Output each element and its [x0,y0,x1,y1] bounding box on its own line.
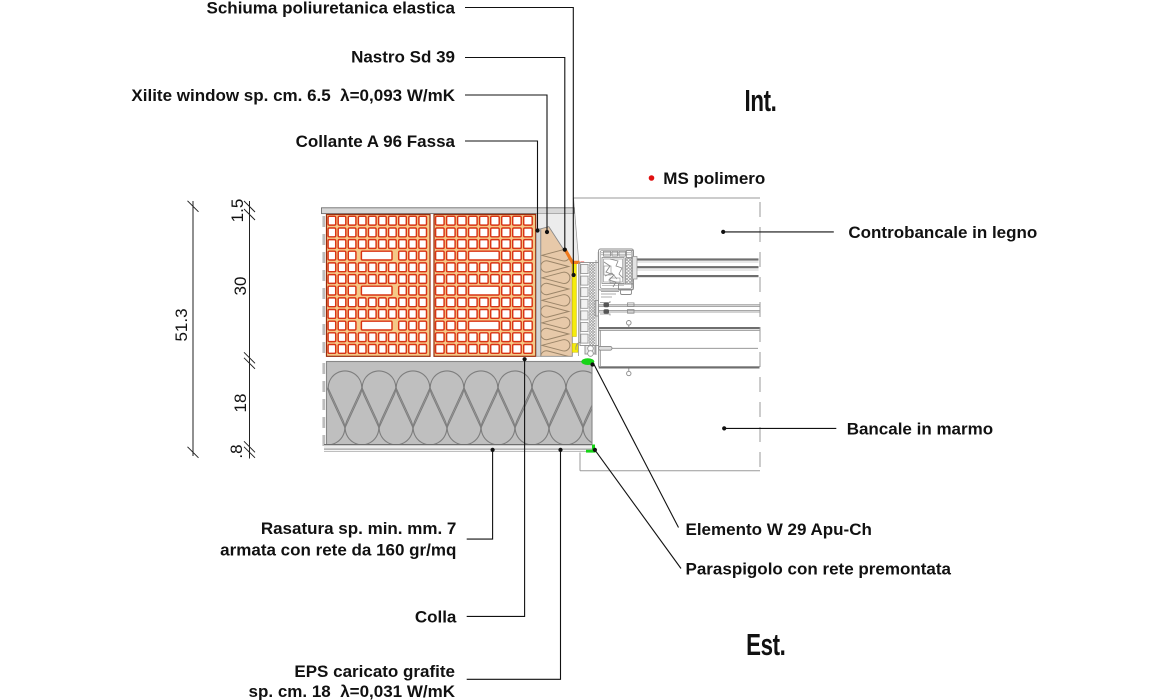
svg-text:Paraspigolo con rete premontat: Paraspigolo con rete premontata [686,560,952,579]
svg-text:armata con rete da 160 gr/mq: armata con rete da 160 gr/mq [220,541,456,560]
svg-text:Est.: Est. [746,628,785,662]
svg-text:Int.: Int. [745,84,777,118]
svg-text:Nastro Sd 39: Nastro Sd 39 [351,48,455,67]
svg-text:Rasatura sp. min. mm. 7: Rasatura sp. min. mm. 7 [261,519,457,538]
svg-text:sp. cm. 18 λ=0,031 W/mK: sp. cm. 18 λ=0,031 W/mK [249,682,456,700]
svg-text:1.5: 1.5 [228,199,247,223]
svg-text:18: 18 [231,394,250,413]
svg-text:Colla: Colla [415,607,457,626]
svg-text:Xilite window sp. cm. 6.5 λ=0: Xilite window sp. cm. 6.5 λ=0,093 W/mK [131,86,455,105]
svg-text:Controbancale in legno: Controbancale in legno [848,223,1037,242]
svg-text:EPS caricato grafite: EPS caricato grafite [294,662,455,681]
svg-text:30: 30 [231,277,250,296]
svg-text:Bancale in marmo: Bancale in marmo [847,419,993,438]
svg-text:.8: .8 [227,444,246,458]
svg-text:51.3: 51.3 [172,308,191,341]
svg-text:Collante A 96 Fassa: Collante A 96 Fassa [296,132,456,151]
svg-text:MS polimero: MS polimero [663,169,765,188]
svg-text:Schiuma poliuretanica elastica: Schiuma poliuretanica elastica [207,0,456,18]
svg-text:Elemento W 29 Apu-Ch: Elemento W 29 Apu-Ch [686,520,872,539]
